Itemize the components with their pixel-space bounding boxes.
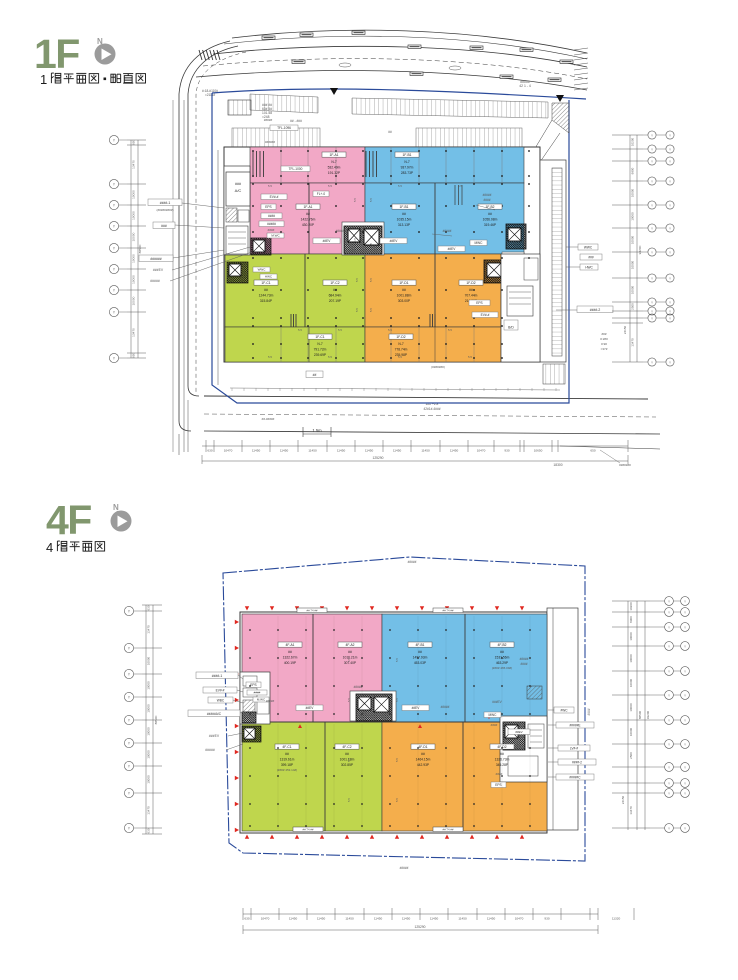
svg-text:(#######): (#######) [431, 365, 445, 369]
svg-text:791.72m: 791.72m [314, 347, 327, 351]
svg-text:9900: 9900 [631, 167, 635, 174]
svg-text:WBC: WBC [217, 699, 225, 703]
svg-text:EV#-#: EV#-# [270, 195, 279, 199]
svg-text:#######: ####### [619, 463, 631, 467]
svg-text:463.29P: 463.29P [496, 661, 509, 665]
svg-text:11450: 11450 [374, 917, 383, 921]
svg-text:Y: Y [651, 276, 653, 280]
svg-text:Y: Y [684, 625, 686, 629]
svg-text:11450: 11450 [450, 449, 459, 453]
svg-text:N: N [113, 503, 119, 512]
svg-text:1035.15m: 1035.15m [397, 217, 412, 221]
svg-text:5.5: 5.5 [369, 278, 373, 282]
svg-text:5.5: 5.5 [398, 184, 402, 188]
svg-text:M.WC: M.WC [257, 698, 266, 702]
svg-text:M.WC: M.WC [271, 234, 280, 238]
svg-text:5.5: 5.5 [355, 278, 359, 282]
svg-text:Y: Y [651, 360, 653, 364]
svg-text:#####: ##### [150, 279, 160, 283]
svg-text:5.5: 5.5 [458, 184, 462, 188]
svg-text:Y: Y [651, 309, 653, 313]
svg-text:Y: Y [668, 765, 670, 769]
svg-text:####: #### [520, 662, 527, 666]
svg-text:1F-D2: 1F-D2 [396, 335, 405, 339]
svg-text:B/D: B/D [508, 326, 514, 330]
svg-text:5.5: 5.5 [395, 698, 399, 702]
svg-text:###EV: ###EV [209, 734, 220, 738]
svg-text:1319.61m: 1319.61m [280, 757, 295, 761]
svg-text:4F-B1: 4F-B1 [416, 643, 425, 647]
svg-text:##: ## [333, 288, 337, 292]
svg-text:24150: 24150 [621, 795, 625, 804]
svg-text:##EV: ##EV [306, 706, 315, 710]
svg-text:11450: 11450 [317, 917, 326, 921]
svg-text:#####: ##### [336, 229, 345, 233]
svg-text:453.03P: 453.03P [414, 661, 427, 665]
svg-text:###: ### [235, 182, 241, 186]
svg-text:###EV: ###EV [153, 268, 164, 272]
svg-text:EPS: EPS [250, 683, 256, 687]
svg-text:10000: 10000 [629, 632, 633, 641]
svg-text:5.5: 5.5 [328, 355, 332, 359]
svg-text:1322.67m: 1322.67m [283, 655, 298, 659]
svg-text:630: 630 [147, 828, 151, 833]
svg-text:5.5: 5.5 [395, 658, 399, 662]
svg-text:10200: 10200 [631, 137, 635, 146]
svg-text:##-#####: ##-##### [262, 417, 275, 421]
svg-text:10000: 10000 [147, 727, 151, 736]
svg-text:Y: Y [668, 599, 670, 603]
svg-text:#####: ##### [205, 748, 215, 752]
svg-text:Y: Y [651, 316, 653, 320]
svg-text:Y: Y [668, 693, 670, 697]
svg-text:Y: Y [684, 742, 686, 746]
svg-text:Y: Y [651, 159, 653, 163]
svg-text:Y: Y [651, 147, 653, 151]
svg-text:###: ### [588, 256, 594, 260]
svg-text:1001.88m: 1001.88m [397, 293, 412, 297]
svg-text:10000: 10000 [147, 681, 151, 690]
svg-text:#####: ##### [483, 193, 492, 197]
svg-text:##EV: ##EV [515, 730, 522, 734]
svg-text:650: 650 [590, 449, 595, 453]
svg-text:191.32P: 191.32P [328, 171, 341, 175]
svg-text:13470: 13470 [132, 160, 136, 169]
svg-text:10000: 10000 [631, 188, 635, 197]
svg-text:####: #### [254, 691, 261, 695]
svg-text:Y: Y [669, 309, 671, 313]
svg-text:239.69P: 239.69P [314, 353, 327, 357]
svg-text:Y: Y [668, 826, 670, 830]
svg-text:1F-A1: 1F-A1 [330, 153, 339, 157]
svg-text:303.00P: 303.00P [398, 299, 411, 303]
svg-text:399.18P: 399.18P [281, 763, 294, 767]
svg-text:10470: 10470 [477, 449, 486, 453]
svg-text:##EV: ##EV [390, 239, 399, 243]
svg-text:Y: Y [669, 133, 671, 137]
svg-text:5.5: 5.5 [347, 658, 351, 662]
svg-text:5.5: 5.5 [395, 758, 399, 762]
svg-text:Y: Y [651, 179, 653, 183]
svg-text:##: ## [264, 288, 268, 292]
svg-text:11450: 11450 [289, 917, 298, 921]
svg-text:10000: 10000 [147, 704, 151, 713]
svg-text:5.5: 5.5 [347, 758, 351, 762]
svg-text:88500: 88500 [154, 715, 158, 724]
svg-text:Y: Y [669, 300, 671, 304]
svg-text:Y: Y [651, 226, 653, 230]
svg-text:N-7: N-7 [404, 160, 409, 164]
svg-text:## - ###: ## - ### [290, 119, 302, 123]
svg-text:630: 630 [207, 449, 212, 453]
svg-text:Y: Y [684, 718, 686, 722]
svg-text:## 74 ##: ## 74 ## [303, 828, 314, 832]
svg-text:4F-A1: 4F-A1 [286, 643, 295, 647]
svg-text:10200: 10200 [629, 602, 633, 611]
svg-text:#####: ##### [441, 705, 450, 709]
svg-text:1056.08m: 1056.08m [483, 217, 498, 221]
svg-text:N-7: N-7 [398, 342, 403, 346]
svg-text:8900: 8900 [629, 616, 633, 623]
svg-text:1: 1 [40, 72, 47, 87]
svg-text:10000: 10000 [147, 775, 151, 784]
svg-text:#####: ##### [267, 222, 276, 226]
svg-text:937.97m: 937.97m [401, 165, 414, 169]
svg-text:10000: 10000 [147, 750, 151, 759]
svg-text:#WC: #WC [560, 709, 568, 713]
svg-text:Y: Y [668, 742, 670, 746]
svg-text:=37#: =37# [601, 347, 608, 351]
svg-text:4F-D1: 4F-D1 [418, 745, 427, 749]
svg-text:Y: Y [684, 599, 686, 603]
svg-text:10000: 10000 [132, 296, 136, 305]
svg-text:EPS: EPS [495, 783, 501, 787]
svg-text:TFL-1096: TFL-1096 [277, 126, 291, 130]
svg-text:1F-C1: 1F-C1 [315, 335, 324, 339]
svg-text:5.5: 5.5 [468, 355, 472, 359]
svg-text:430.20P: 430.20P [302, 223, 315, 227]
svg-text:302.85P: 302.85P [341, 763, 354, 767]
svg-text:##: ## [288, 650, 292, 654]
svg-text:FL+-0: FL+-0 [317, 192, 326, 196]
svg-text:EV#-#: EV#-# [216, 689, 225, 693]
svg-text:Y: Y [651, 133, 653, 137]
svg-text:630: 630 [244, 917, 249, 921]
svg-text:5.5: 5.5 [328, 184, 332, 188]
svg-text:###EV: ###EV [492, 700, 502, 704]
svg-text:#:28#: #:28# [600, 337, 608, 341]
svg-text:10000: 10000 [147, 656, 151, 665]
svg-text:2500: 2500 [631, 303, 635, 310]
svg-text:10000: 10000 [629, 654, 633, 663]
svg-text:Y: Y [669, 203, 671, 207]
svg-text:##: ## [306, 212, 310, 216]
svg-text:Y: Y [669, 179, 671, 183]
svg-text:4F-C1: 4F-C1 [282, 745, 291, 749]
svg-text:Y: Y [651, 250, 653, 254]
svg-text:11450: 11450 [308, 449, 317, 453]
svg-text:630: 630 [132, 353, 136, 358]
svg-text:630: 630 [147, 605, 151, 610]
svg-text:1F-B1: 1F-B1 [403, 153, 412, 157]
svg-text:5.5: 5.5 [369, 308, 373, 312]
svg-text:11450: 11450 [421, 449, 430, 453]
svg-text:4F-C2: 4F-C2 [342, 745, 351, 749]
svg-text:#####: ##### [520, 657, 529, 661]
svg-text:##: ## [469, 288, 473, 292]
svg-text:1244.73m: 1244.73m [259, 293, 274, 297]
svg-text:1422.76m: 1422.76m [301, 217, 316, 221]
svg-text:313.13P: 313.13P [398, 223, 411, 227]
svg-text:=2111#: =2111# [205, 93, 215, 97]
svg-text:42#1#-4###: 42#1#-4### [423, 407, 440, 411]
svg-text:10000: 10000 [631, 235, 635, 244]
svg-text:## 74 ##: ## 74 ## [443, 609, 454, 613]
svg-text:11450: 11450 [252, 449, 261, 453]
svg-text:10000: 10000 [132, 254, 136, 263]
svg-text:93200: 93200 [638, 245, 642, 254]
svg-text:Y: Y [669, 147, 671, 151]
svg-text:10000: 10000 [631, 212, 635, 221]
svg-text:1F-C2: 1F-C2 [330, 281, 339, 285]
svg-text:10650: 10650 [534, 449, 543, 453]
svg-text:(#### 453.14#): (#### 453.14#) [277, 768, 297, 772]
svg-text:5.5: 5.5 [298, 328, 302, 332]
svg-text:## 74 ##: ## 74 ## [443, 828, 454, 832]
svg-text:#####: ##### [520, 80, 530, 84]
svg-text:####: #### [268, 214, 275, 218]
svg-text:10000: 10000 [629, 727, 633, 736]
svg-text:MWC: MWC [489, 713, 498, 717]
svg-text:10470: 10470 [261, 917, 270, 921]
svg-text:WWC: WWC [258, 268, 267, 272]
svg-text:10000: 10000 [629, 678, 633, 687]
svg-text:5.5: 5.5 [353, 198, 357, 202]
svg-text:930: 930 [504, 449, 509, 453]
svg-text:Y: Y [668, 610, 670, 614]
svg-text:319.46P: 319.46P [484, 223, 497, 227]
svg-text:4F: 4F [46, 497, 91, 543]
svg-text:11450: 11450 [280, 449, 289, 453]
svg-text:Y: Y [684, 644, 686, 648]
svg-text:##: ## [418, 650, 422, 654]
svg-text:####: #### [587, 708, 591, 715]
svg-text:######: ###### [150, 257, 161, 261]
svg-text:Y: Y [651, 300, 653, 304]
svg-text:MWC: MWC [475, 241, 484, 245]
svg-text:####-2: ####-2 [590, 308, 601, 312]
svg-text:Y: Y [684, 669, 686, 673]
svg-text:Y: Y [684, 765, 686, 769]
svg-text:13470: 13470 [629, 806, 633, 815]
svg-text:630: 630 [132, 140, 136, 145]
svg-text:Y: Y [669, 226, 671, 230]
svg-text:Y: Y [668, 644, 670, 648]
svg-text:707.44m: 707.44m [465, 293, 478, 297]
svg-text:4F-A2: 4F-A2 [346, 643, 355, 647]
svg-text:Y: Y [651, 203, 653, 207]
svg-text:#####: ##### [443, 229, 452, 233]
svg-text:EV#-#: EV#-# [481, 313, 490, 317]
svg-text:A/C: A/C [235, 188, 242, 193]
svg-text:5.5: 5.5 [355, 308, 359, 312]
svg-text:930: 930 [544, 917, 549, 921]
svg-text:11450: 11450 [458, 917, 467, 921]
svg-text:684.94m: 684.94m [329, 293, 342, 297]
svg-text:1F-D1: 1F-D1 [399, 281, 408, 285]
svg-text:####-2: ####-2 [572, 761, 582, 765]
svg-text:Y: Y [668, 781, 670, 785]
svg-text:###: ### [161, 224, 167, 228]
svg-text:## 74 ##: ## 74 ## [307, 609, 318, 613]
svg-text:N-7: N-7 [331, 160, 336, 164]
svg-text:HWC: HWC [585, 266, 593, 270]
svg-text:10000: 10000 [132, 232, 136, 241]
svg-text:HWC: HWC [265, 275, 273, 279]
svg-text:1F-B1: 1F-B1 [400, 205, 409, 209]
svg-text:11450: 11450 [402, 917, 411, 921]
svg-text:4: 4 [46, 540, 53, 555]
svg-text:93200: 93200 [646, 710, 650, 719]
svg-text:5.5: 5.5 [369, 198, 373, 202]
svg-text:5.5: 5.5 [338, 328, 342, 332]
svg-text:88500: 88500 [138, 244, 142, 253]
svg-text:Y: Y [668, 718, 670, 722]
svg-text:Y: Y [669, 159, 671, 163]
svg-text:10000: 10000 [629, 703, 633, 712]
svg-text:Y: Y [668, 791, 670, 795]
svg-text:#####E: #####E [570, 724, 581, 728]
svg-text:WWC: WWC [584, 246, 593, 250]
svg-text:#####: ##### [408, 560, 417, 564]
svg-text:#:9#: #:9# [601, 342, 607, 346]
svg-text:##: ## [402, 212, 406, 216]
svg-text:#####: ##### [264, 118, 273, 122]
svg-text:18300: 18300 [553, 463, 562, 467]
svg-text:##: ## [402, 288, 406, 292]
svg-text:11450: 11450 [487, 917, 496, 921]
svg-text:####: #### [268, 228, 275, 232]
svg-text:10000: 10000 [132, 275, 136, 284]
svg-text:1F-C1: 1F-C1 [261, 281, 270, 285]
svg-text:EPS: EPS [265, 205, 271, 209]
svg-text:442.93P: 442.93P [417, 763, 430, 767]
svg-text:##: ## [488, 212, 492, 216]
svg-text:1497.93m: 1497.93m [413, 655, 428, 659]
svg-text:5.5: 5.5 [395, 798, 399, 802]
svg-text:5.5: 5.5 [398, 355, 402, 359]
svg-text:11450: 11450 [365, 449, 374, 453]
svg-text:##: ## [285, 752, 289, 756]
svg-text:1F-A1: 1F-A1 [304, 205, 313, 209]
svg-text:88500: 88500 [638, 710, 642, 719]
svg-text:13470: 13470 [132, 328, 136, 337]
svg-text:#####: ##### [266, 699, 275, 703]
svg-text:Y: Y [669, 316, 671, 320]
svg-text:11450: 11450 [430, 917, 439, 921]
svg-text:##: ## [348, 650, 352, 654]
svg-text:###: ### [601, 332, 606, 336]
svg-text:13470: 13470 [631, 338, 635, 347]
svg-text:##: ## [345, 752, 349, 756]
svg-text:5.5: 5.5 [268, 184, 272, 188]
svg-text:10000: 10000 [132, 211, 136, 220]
svg-text:42 1 - 4: 42 1 - 4 [519, 84, 531, 88]
svg-text:Y: Y [669, 360, 671, 364]
svg-text:10470: 10470 [224, 449, 233, 453]
svg-text:##EV: ##EV [412, 706, 421, 710]
svg-text:5.5: 5.5 [353, 238, 357, 242]
svg-text:2500: 2500 [629, 752, 633, 759]
svg-text:1.5m: 1.5m [312, 428, 322, 433]
svg-text:#####: ##### [400, 866, 409, 870]
svg-text:LV#-#: LV#-# [570, 747, 578, 751]
svg-text:N-7: N-7 [317, 342, 322, 346]
svg-text:#####C: #####C [569, 776, 581, 780]
svg-text:##: ## [388, 130, 392, 134]
svg-text:5.5: 5.5 [347, 698, 351, 702]
svg-text:13470: 13470 [147, 625, 151, 634]
svg-text:EPS: EPS [476, 301, 482, 305]
svg-text:####-1: ####-1 [160, 201, 171, 205]
svg-text:125290: 125290 [414, 925, 425, 929]
svg-text:####-1: ####-1 [212, 674, 223, 678]
svg-text:Y: Y [684, 791, 686, 795]
svg-text:##: ## [313, 373, 317, 377]
svg-text:Y: Y [668, 669, 670, 673]
svg-text:10000: 10000 [132, 190, 136, 199]
svg-text:1F-D2: 1F-D2 [466, 281, 475, 285]
svg-text:1F: 1F [34, 31, 79, 77]
svg-text:11450: 11450 [345, 917, 354, 921]
svg-text:13470: 13470 [147, 806, 151, 815]
svg-text:24150: 24150 [623, 325, 627, 334]
svg-text:400.19P: 400.19P [284, 661, 297, 665]
svg-text:(#########): (#########) [156, 208, 173, 212]
svg-text:345.28P: 345.28P [496, 763, 509, 767]
svg-text:##EV: ##EV [323, 239, 332, 243]
svg-text:5.5: 5.5 [369, 243, 373, 247]
svg-text:Y: Y [684, 693, 686, 697]
svg-text:11450: 11450 [337, 449, 346, 453]
svg-text:####: #### [483, 198, 490, 202]
svg-text:##EV: ##EV [448, 247, 457, 251]
svg-text:125290: 125290 [372, 456, 383, 460]
svg-text:532.49m: 532.49m [328, 165, 341, 169]
svg-text:778.74m: 778.74m [395, 347, 408, 351]
svg-text:5.5: 5.5 [268, 355, 272, 359]
svg-text:5.5: 5.5 [448, 328, 452, 332]
svg-text:##: ## [421, 752, 425, 756]
svg-text:5.5: 5.5 [388, 328, 392, 332]
svg-text:10000: 10000 [631, 260, 635, 269]
svg-text:Y: Y [668, 625, 670, 629]
svg-text:Y: Y [684, 781, 686, 785]
svg-text:283.73P: 283.73P [401, 171, 414, 175]
svg-text:315.84P: 315.84P [260, 299, 273, 303]
svg-text:Y: Y [669, 250, 671, 254]
svg-text:####: #### [491, 723, 498, 727]
svg-text:207.19P: 207.19P [329, 299, 342, 303]
svg-text:Y: Y [669, 276, 671, 280]
svg-text:Y: Y [684, 826, 686, 830]
svg-text:5.5: 5.5 [347, 798, 351, 802]
svg-text:######: ###### [265, 140, 275, 144]
svg-text:11320: 11320 [612, 917, 621, 921]
svg-text:#####A/C: #####A/C [207, 712, 222, 716]
svg-text:11450: 11450 [393, 449, 402, 453]
svg-text:TFL-1000: TFL-1000 [289, 167, 303, 171]
